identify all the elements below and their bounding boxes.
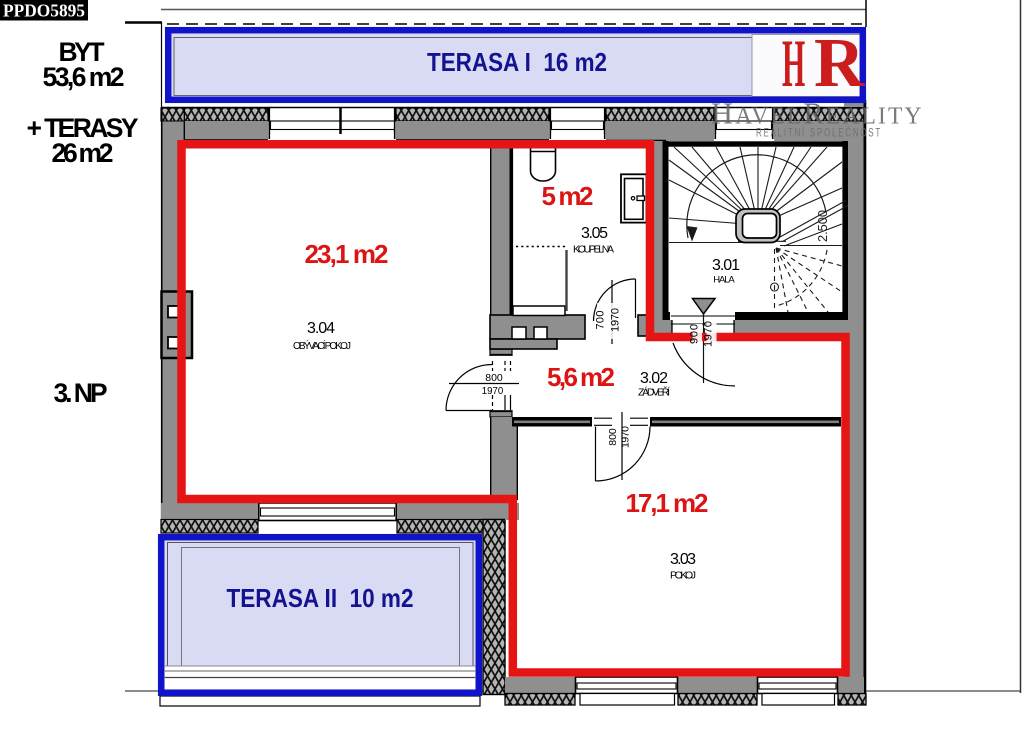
svg-text:700: 700 [595, 311, 607, 330]
svg-text:PPDO5895: PPDO5895 [3, 1, 85, 21]
svg-text:17,1 m2: 17,1 m2 [626, 488, 709, 518]
svg-text:3.04: 3.04 [307, 320, 335, 337]
svg-text:TERASA II 10 m2: TERASA II 10 m2 [227, 583, 414, 613]
svg-text:3.05: 3.05 [581, 225, 608, 242]
svg-text:5,6 m2: 5,6 m2 [547, 362, 615, 392]
svg-text:REALITNÍ SPOLEČNOST: REALITNÍ SPOLEČNOST [756, 127, 882, 140]
svg-text:2.500: 2.500 [816, 210, 830, 242]
svg-text:23,1 m2: 23,1 m2 [305, 239, 389, 269]
svg-text:3.02: 3.02 [640, 370, 668, 387]
svg-text:1970: 1970 [703, 321, 715, 347]
svg-text:POKOJ: POKOJ [670, 570, 696, 582]
svg-text:H: H [782, 26, 805, 101]
svg-text:R: R [814, 25, 866, 102]
svg-text:ZÁDVEŘÍ: ZÁDVEŘÍ [638, 386, 670, 399]
svg-text:3. NP: 3. NP [54, 378, 108, 408]
svg-text:26 m2: 26 m2 [52, 138, 114, 168]
svg-text:1970: 1970 [482, 385, 504, 397]
svg-text:800: 800 [607, 428, 619, 446]
svg-text:53,6 m2: 53,6 m2 [43, 62, 125, 92]
svg-text:5 m2: 5 m2 [542, 181, 594, 211]
svg-text:3.01: 3.01 [712, 257, 740, 274]
svg-text:1970: 1970 [620, 426, 632, 448]
svg-text:KOUPELNA: KOUPELNA [573, 244, 614, 256]
svg-text:OBÝVACÍ POKOJ: OBÝVACÍ POKOJ [293, 339, 351, 352]
svg-text:HALA: HALA [713, 275, 735, 286]
svg-text:TERASA I 16 m2: TERASA I 16 m2 [427, 47, 607, 77]
svg-text:1970: 1970 [610, 308, 622, 332]
svg-text:800: 800 [485, 372, 503, 384]
svg-text:900: 900 [689, 324, 701, 344]
svg-text:3.03: 3.03 [670, 551, 696, 568]
